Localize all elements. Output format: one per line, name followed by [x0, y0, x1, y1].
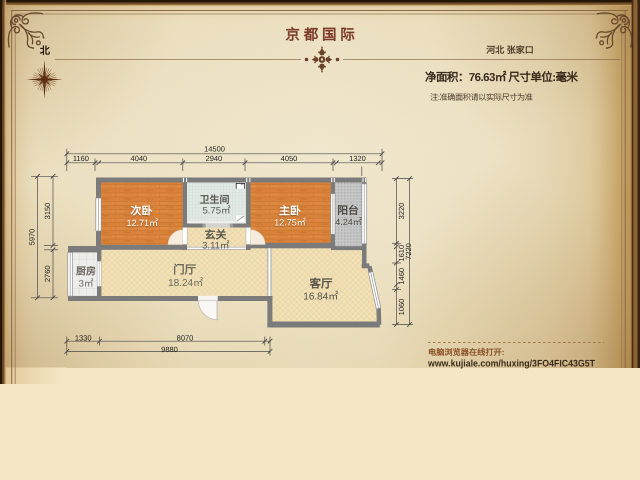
- svg-text:1460: 1460: [397, 268, 406, 285]
- svg-text:1160: 1160: [73, 154, 89, 163]
- svg-text:北: 北: [40, 45, 51, 57]
- svg-text:河北 张家口: 河北 张家口: [485, 45, 534, 55]
- svg-text:www.kujiale.com/huxing/3FO4FIC: www.kujiale.com/huxing/3FO4FIC43G5T: [427, 358, 595, 369]
- svg-text:客厅: 客厅: [309, 277, 333, 291]
- svg-text:14500: 14500: [204, 145, 225, 154]
- svg-text:卫生间: 卫生间: [200, 194, 230, 206]
- svg-text:2760: 2760: [43, 265, 52, 282]
- svg-text:阳台: 阳台: [337, 204, 359, 217]
- svg-text:5970: 5970: [27, 229, 36, 246]
- svg-text:3220: 3220: [397, 203, 406, 220]
- svg-text:门厅: 门厅: [173, 264, 196, 277]
- svg-text:5.75㎡: 5.75㎡: [203, 205, 231, 217]
- svg-text:2940: 2940: [206, 154, 223, 163]
- svg-text:3㎡: 3㎡: [79, 278, 94, 290]
- svg-text:1330: 1330: [75, 333, 92, 342]
- svg-text:7220: 7220: [404, 243, 413, 260]
- svg-text:4.24㎡: 4.24㎡: [335, 217, 362, 227]
- svg-text:4050: 4050: [281, 154, 298, 163]
- svg-text:12.71㎡: 12.71㎡: [127, 218, 159, 228]
- svg-text:3.11㎡: 3.11㎡: [202, 239, 230, 251]
- svg-text:16.84㎡: 16.84㎡: [303, 291, 338, 303]
- svg-text:主卧: 主卧: [279, 205, 301, 218]
- svg-text:净面积：76.63㎡ 尺寸单位:毫米: 净面积：76.63㎡ 尺寸单位:毫米: [425, 70, 578, 84]
- svg-text:京都国际: 京都国际: [285, 26, 358, 43]
- svg-text:8070: 8070: [177, 333, 194, 342]
- svg-text:3150: 3150: [43, 203, 52, 220]
- svg-text:18.24㎡: 18.24㎡: [168, 277, 203, 289]
- svg-text:次卧: 次卧: [131, 205, 153, 218]
- svg-text:电脑浏览器在线打开:: 电脑浏览器在线打开:: [428, 347, 504, 357]
- svg-text:1060: 1060: [397, 299, 406, 316]
- svg-text:厨房: 厨房: [76, 266, 96, 278]
- svg-text:9880: 9880: [161, 345, 178, 354]
- svg-text:注:准确面积请以实际尺寸为准: 注:准确面积请以实际尺寸为准: [430, 93, 533, 102]
- svg-text:1320: 1320: [349, 154, 366, 163]
- svg-text:4040: 4040: [131, 154, 148, 163]
- svg-text:12.75㎡: 12.75㎡: [274, 218, 306, 228]
